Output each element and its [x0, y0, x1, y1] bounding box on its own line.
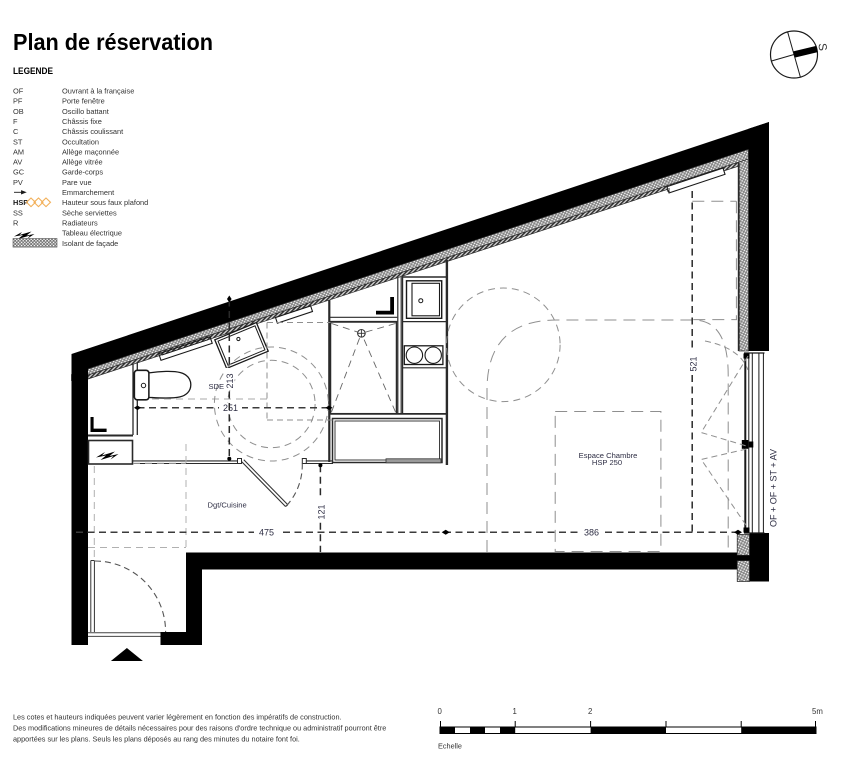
svg-text:Radiateurs: Radiateurs — [62, 219, 98, 228]
svg-text:S: S — [816, 43, 829, 52]
svg-text:1: 1 — [513, 707, 517, 716]
svg-text:475: 475 — [259, 528, 274, 538]
svg-text:R: R — [13, 219, 18, 228]
svg-text:Emmarchement: Emmarchement — [62, 188, 114, 197]
svg-text:SS: SS — [13, 208, 23, 217]
svg-text:Les cotes et hauteurs indiquée: Les cotes et hauteurs indiquées peuvent … — [13, 713, 342, 722]
svg-text:Occultation: Occultation — [62, 137, 99, 146]
svg-text:SDE: SDE — [209, 382, 225, 391]
svg-text:Plan de réservation: Plan de réservation — [13, 29, 213, 55]
svg-text:Isolant de façade: Isolant de façade — [62, 239, 118, 248]
svg-text:HSP 250: HSP 250 — [592, 458, 622, 467]
svg-text:F: F — [13, 117, 18, 126]
svg-text:PV: PV — [13, 178, 23, 187]
svg-text:Garde-corps: Garde-corps — [62, 168, 103, 177]
svg-text:LEGENDE: LEGENDE — [13, 66, 53, 76]
svg-text:121: 121 — [316, 504, 326, 519]
svg-text:R: R — [667, 188, 671, 194]
svg-text:213: 213 — [225, 373, 235, 388]
svg-text:Ouvrant à la française: Ouvrant à la française — [62, 87, 134, 96]
svg-text:386: 386 — [584, 528, 599, 538]
svg-text:OF: OF — [13, 87, 24, 96]
svg-text:OF + OF + ST + AV: OF + OF + ST + AV — [769, 449, 779, 527]
svg-text:Echelle: Echelle — [438, 742, 462, 751]
svg-text:HSP: HSP — [13, 198, 28, 207]
svg-text:0: 0 — [438, 707, 443, 716]
svg-text:Allège maçonnée: Allège maçonnée — [62, 147, 119, 156]
svg-text:Châssis coulissant: Châssis coulissant — [62, 127, 123, 136]
svg-text:Oscillo battant: Oscillo battant — [62, 107, 109, 116]
svg-text:PF: PF — [13, 97, 23, 106]
svg-text:Des modifications mineures de: Des modifications mineures de détails né… — [13, 724, 386, 733]
svg-text:GC: GC — [13, 168, 25, 177]
svg-text:Porte fenêtre: Porte fenêtre — [62, 97, 105, 106]
svg-text:521: 521 — [689, 356, 699, 371]
svg-text:ST: ST — [13, 137, 23, 146]
svg-text:Dgt/Cuisine: Dgt/Cuisine — [208, 501, 247, 510]
svg-text:Allège vitrée: Allège vitrée — [62, 158, 103, 167]
svg-text:AM: AM — [13, 147, 24, 156]
svg-text:Châssis fixe: Châssis fixe — [62, 117, 102, 126]
svg-text:Tableau électrique: Tableau électrique — [62, 229, 122, 238]
svg-text:apportées sur les plans. Seuls: apportées sur les plans. Seuls les plans… — [13, 735, 300, 744]
svg-text:Hauteur sous faux plafond: Hauteur sous faux plafond — [62, 198, 148, 207]
svg-text:Sèche serviettes: Sèche serviettes — [62, 208, 117, 217]
svg-text:OB: OB — [13, 107, 24, 116]
svg-text:C: C — [13, 127, 19, 136]
svg-text:2: 2 — [588, 707, 592, 716]
svg-text:Pare vue: Pare vue — [62, 178, 92, 187]
svg-text:5m: 5m — [812, 707, 823, 716]
svg-text:AV: AV — [13, 158, 22, 167]
svg-text:251: 251 — [223, 403, 238, 413]
